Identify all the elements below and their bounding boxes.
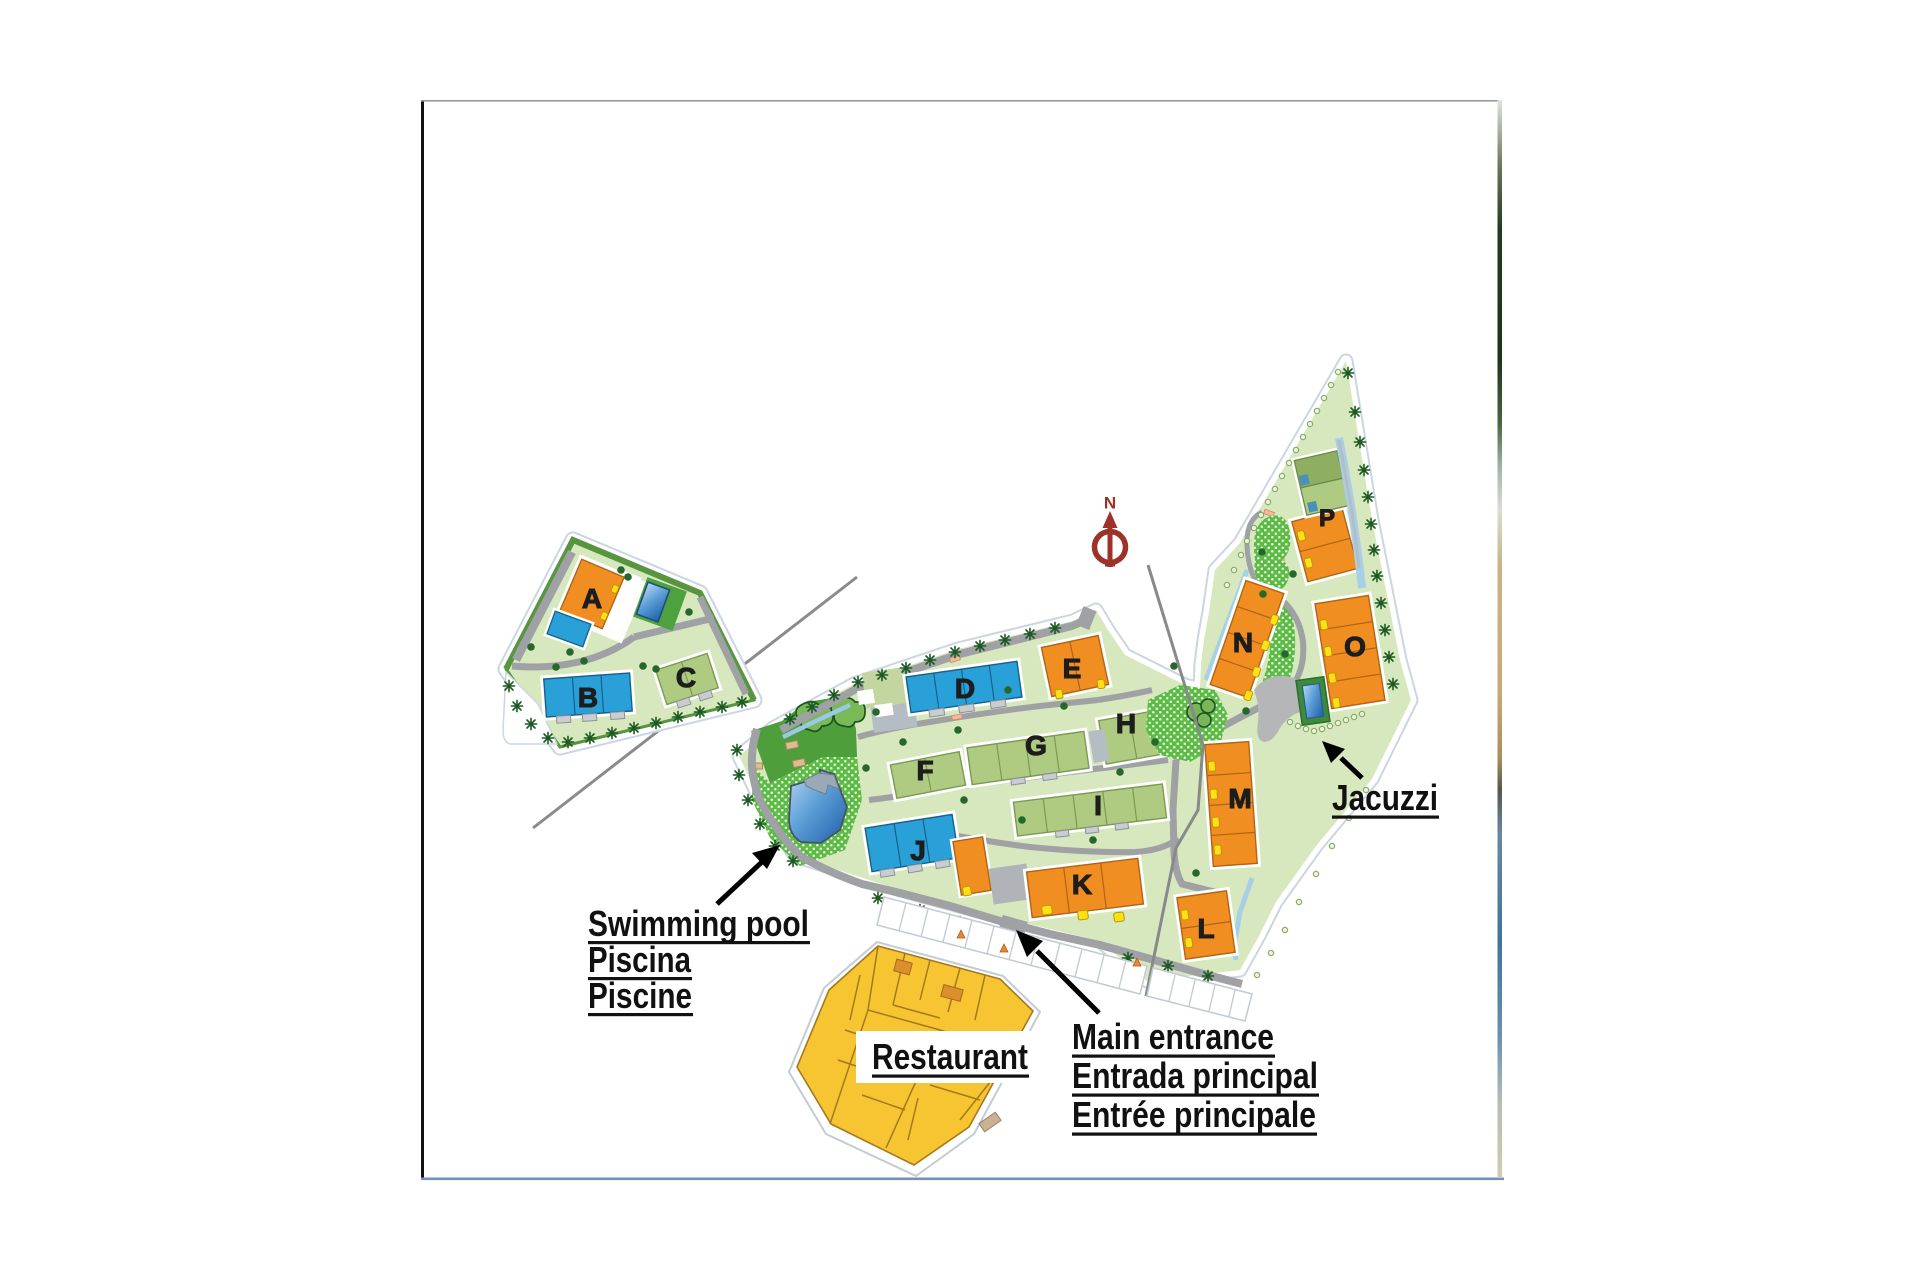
svg-text:A: A: [582, 583, 602, 614]
svg-text:K: K: [1072, 869, 1092, 900]
svg-text:M: M: [1228, 783, 1251, 814]
svg-text:E: E: [1063, 653, 1082, 684]
svg-text:Piscina: Piscina: [588, 939, 692, 980]
svg-text:Restaurant: Restaurant: [872, 1036, 1028, 1077]
svg-text:F: F: [916, 755, 933, 786]
svg-text:Main entrance: Main entrance: [1072, 1016, 1274, 1057]
svg-text:L: L: [1197, 913, 1214, 944]
svg-text:Entrée principale: Entrée principale: [1072, 1094, 1316, 1135]
svg-text:H: H: [1116, 708, 1136, 739]
svg-text:P: P: [1319, 505, 1335, 532]
svg-text:J: J: [910, 835, 926, 866]
svg-text:Swimming pool: Swimming pool: [588, 903, 809, 944]
svg-text:N: N: [1233, 627, 1253, 658]
svg-text:G: G: [1025, 730, 1047, 761]
svg-text:N: N: [1104, 494, 1116, 513]
svg-text:B: B: [578, 682, 598, 713]
svg-text:Entrada principal: Entrada principal: [1072, 1055, 1318, 1096]
svg-text:C: C: [676, 662, 696, 693]
svg-text:Piscine: Piscine: [588, 975, 692, 1016]
svg-text:Jacuzzi: Jacuzzi: [1332, 777, 1438, 818]
svg-text:O: O: [1344, 631, 1366, 662]
svg-text:I: I: [1094, 790, 1102, 821]
svg-text:D: D: [955, 673, 975, 704]
